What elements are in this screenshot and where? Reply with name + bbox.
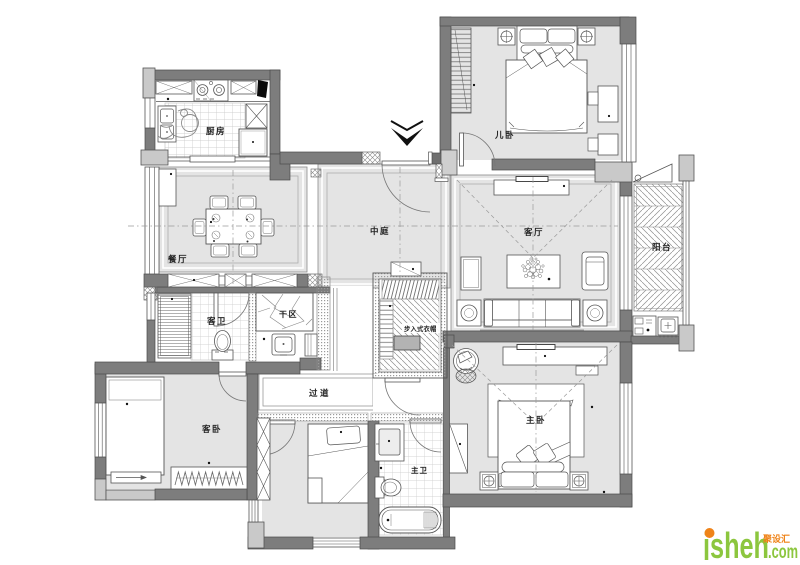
svg-text:儿卧: 儿卧 — [494, 130, 515, 140]
svg-text:阳台: 阳台 — [652, 242, 672, 252]
svg-text:厨房: 厨房 — [206, 126, 226, 136]
svg-text:中庭: 中庭 — [370, 226, 390, 236]
svg-text:主卫: 主卫 — [411, 465, 428, 475]
svg-text:餐厅: 餐厅 — [167, 254, 188, 264]
svg-text:步入式衣帽: 步入式衣帽 — [404, 324, 437, 333]
svg-text:客厅: 客厅 — [523, 227, 544, 237]
svg-text:聚设汇: 聚设汇 — [762, 533, 790, 544]
svg-text:客卧: 客卧 — [201, 424, 222, 434]
svg-text:客卫: 客卫 — [206, 316, 227, 326]
svg-text:过道: 过道 — [309, 388, 331, 398]
svg-text:干区: 干区 — [279, 310, 298, 319]
svg-text:.com: .com — [768, 542, 798, 560]
svg-text:主卧: 主卧 — [526, 415, 546, 425]
